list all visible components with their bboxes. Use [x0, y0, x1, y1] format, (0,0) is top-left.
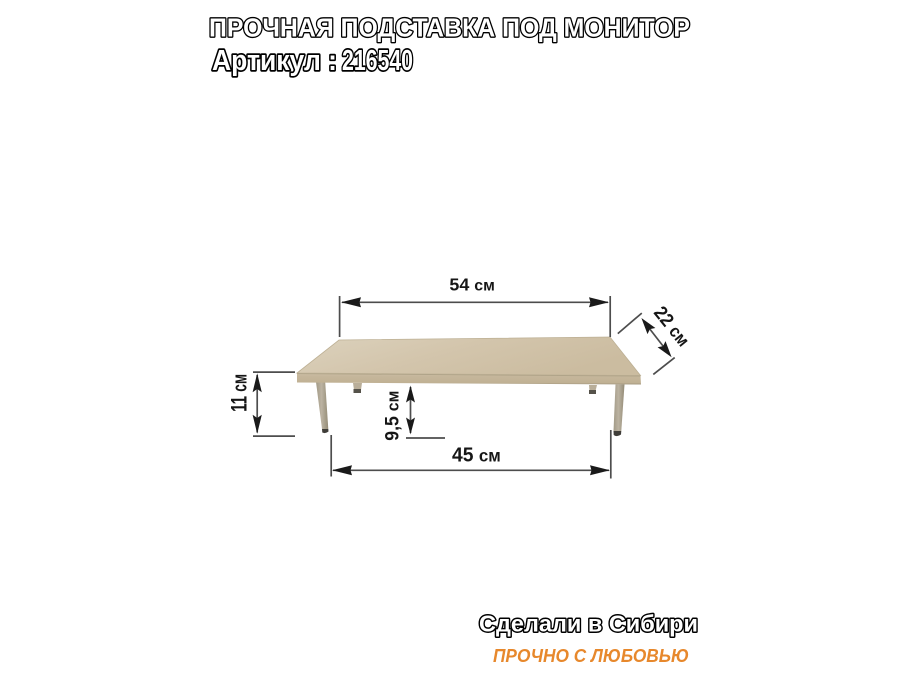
svg-text:Артикул :: Артикул :	[212, 45, 337, 77]
svg-text:216540: 216540	[342, 45, 413, 77]
svg-text:ПРОЧНАЯ ПОДСТАВКА ПОД МОНИТОР: ПРОЧНАЯ ПОДСТАВКА ПОД МОНИТОР	[209, 13, 690, 43]
svg-text:45 см: 45 см	[452, 445, 501, 467]
svg-text:ПРОЧНО С ЛЮБОВЬЮ: ПРОЧНО С ЛЮБОВЬЮ	[493, 646, 689, 666]
svg-text:Сделали в Сибири: Сделали в Сибири	[479, 611, 698, 637]
svg-text:22 см: 22 см	[649, 303, 694, 351]
svg-text:11 см: 11 см	[227, 374, 252, 412]
svg-text:54 см: 54 см	[449, 275, 495, 295]
svg-text:9,5 см: 9,5 см	[383, 391, 404, 441]
